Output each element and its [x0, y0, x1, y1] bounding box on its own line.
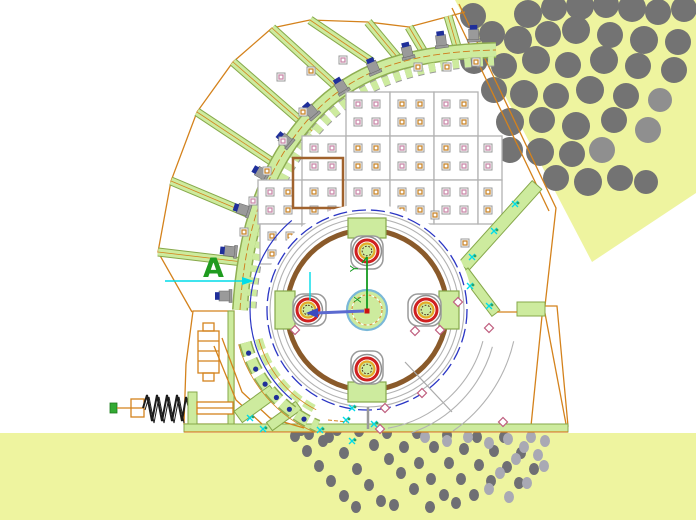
panel-bolt-square — [240, 228, 248, 236]
rock — [635, 117, 661, 143]
rock — [535, 21, 561, 47]
liner-panel — [434, 180, 478, 224]
particle — [384, 453, 394, 465]
panel-bolt-square — [460, 100, 468, 108]
panel-bolt-square — [372, 100, 380, 108]
cyan-mark-dot — [354, 439, 357, 442]
rock — [665, 29, 691, 55]
center-point — [365, 309, 370, 314]
datum-label-a: A — [203, 253, 224, 284]
panel-bolt-square — [354, 100, 362, 108]
panel-bolt-square — [354, 162, 362, 170]
particle — [389, 499, 399, 511]
cyan-mark-dot — [354, 406, 357, 409]
grate-bolt — [274, 395, 279, 400]
cyan-mark-dot — [322, 428, 325, 431]
particle — [540, 435, 550, 447]
particle — [469, 489, 479, 501]
cyan-mark-dot — [474, 255, 477, 258]
particle — [339, 490, 349, 502]
panel-bolt-square — [398, 118, 406, 126]
particle — [326, 475, 336, 487]
panel-bolt-square — [339, 56, 347, 64]
panel-bolt-square — [249, 197, 257, 205]
rock — [543, 165, 569, 191]
cyan-mark-dot — [376, 422, 379, 425]
grate-bolt — [301, 417, 306, 422]
particle — [484, 483, 494, 495]
grate-bolt — [246, 351, 251, 356]
panel-bolt-square — [354, 188, 362, 196]
liner-panel — [390, 136, 434, 180]
pin-marker — [484, 323, 493, 332]
particle — [456, 473, 466, 485]
rock — [601, 107, 627, 133]
panel-bolt-square — [372, 188, 380, 196]
panel-bolt-square — [328, 162, 336, 170]
panel-bolt-square — [354, 118, 362, 126]
rock — [555, 52, 581, 78]
panel-bolt-square — [460, 144, 468, 152]
particle — [472, 431, 482, 443]
panel-bolt-square — [372, 162, 380, 170]
rock — [514, 0, 542, 28]
panel-bolt-square — [328, 188, 336, 196]
hammer-holder — [275, 291, 295, 329]
cyan-mark-dot — [491, 304, 494, 307]
particle — [351, 501, 361, 513]
particle — [399, 441, 409, 453]
hammer-holder — [348, 382, 386, 402]
ucs-y-label: Y — [348, 265, 361, 273]
liner-panel — [478, 136, 502, 180]
panel-bolt-square — [266, 206, 274, 214]
panel-bolt-square — [460, 162, 468, 170]
spring-end-cap — [110, 403, 117, 413]
panel-bolt-square — [354, 144, 362, 152]
particle — [364, 479, 374, 491]
particle — [526, 431, 536, 443]
panel-bolt-square — [310, 162, 318, 170]
panel-bolt-square — [299, 108, 307, 116]
cyan-mark-dot — [265, 427, 268, 430]
bolt-cap — [436, 31, 444, 36]
particle — [442, 435, 452, 447]
liner-panel — [346, 92, 390, 136]
liner-panel — [258, 180, 302, 224]
particle — [369, 439, 379, 451]
rock — [559, 141, 585, 167]
rock — [634, 170, 658, 194]
grate-bolt — [287, 407, 292, 412]
hammer-assembly — [408, 291, 459, 329]
liner-bolt — [433, 30, 448, 48]
particle — [474, 459, 484, 471]
rock — [648, 88, 672, 112]
panel-bolt-square — [442, 206, 450, 214]
hammer-assembly — [348, 351, 386, 402]
rib-centerline — [368, 22, 398, 58]
panel-bolt-square — [398, 144, 406, 152]
panel-bolt-square — [442, 162, 450, 170]
rock — [562, 112, 590, 140]
hammer-holder — [348, 218, 386, 238]
particle — [339, 447, 349, 459]
rock — [613, 83, 639, 109]
particle — [503, 433, 513, 445]
panel-bolt-square — [307, 67, 315, 75]
panel-bolt-square — [484, 188, 492, 196]
particle — [314, 460, 324, 472]
particle — [463, 431, 473, 443]
crusher-drawing: Y X A — [0, 0, 696, 520]
panel-bolt-square — [372, 144, 380, 152]
liner-panel — [346, 136, 390, 180]
particle — [439, 489, 449, 501]
liner-panel — [434, 136, 478, 180]
particle — [376, 495, 386, 507]
rock — [522, 46, 550, 74]
particle — [409, 483, 419, 495]
hammer-holder — [439, 291, 459, 329]
panel-bolt-square — [472, 58, 480, 66]
panel-bolt-square — [277, 73, 285, 81]
cyan-mark-dot — [496, 229, 499, 232]
particle — [420, 431, 430, 443]
rock — [543, 83, 569, 109]
panel-bolt-square — [416, 100, 424, 108]
particle — [324, 431, 334, 443]
panel-bolt-square — [460, 118, 468, 126]
particle — [511, 453, 521, 465]
rock — [574, 168, 602, 196]
particle — [504, 491, 514, 503]
panel-bolt-square — [443, 63, 451, 71]
panel-bolt-square — [398, 100, 406, 108]
panel-bolt-square — [484, 206, 492, 214]
rock — [526, 138, 554, 166]
particle — [426, 473, 436, 485]
rock — [576, 76, 604, 104]
hammer-assembly — [275, 291, 326, 329]
panel-bolt-square — [442, 188, 450, 196]
panel-bolt-square — [279, 137, 287, 145]
rock — [589, 137, 615, 163]
rock — [510, 80, 538, 108]
panel-bolt-square — [328, 144, 336, 152]
panel-bolt-square — [442, 100, 450, 108]
rock — [597, 22, 623, 48]
panel-bolt-square — [442, 144, 450, 152]
bolt-cap — [470, 25, 478, 30]
discharge-fill — [0, 433, 696, 520]
panel-bolt-square — [484, 162, 492, 170]
rock — [661, 57, 687, 83]
cyan-mark-dot — [348, 418, 351, 421]
particle — [484, 437, 494, 449]
panel-bolt-square — [310, 188, 318, 196]
particle — [495, 467, 505, 479]
bolt-body — [219, 291, 230, 301]
rock — [529, 107, 555, 133]
panel-bolt-square — [268, 250, 276, 258]
panel-bolt-square — [416, 162, 424, 170]
right-leg — [497, 302, 568, 426]
rock — [625, 53, 651, 79]
discharge-region — [0, 433, 696, 520]
particle — [539, 460, 549, 472]
panel-bolt-square — [416, 118, 424, 126]
ucs-x-label: X — [353, 296, 364, 303]
bolt-body — [435, 34, 446, 46]
particle — [519, 441, 529, 453]
panel-bolt-square — [460, 188, 468, 196]
panel-bolt-square — [284, 188, 292, 196]
particle — [459, 443, 469, 455]
panel-bolt-square — [266, 188, 274, 196]
grate-bolt — [253, 367, 258, 372]
particle — [429, 441, 439, 453]
cyan-mark-dot — [472, 284, 475, 287]
rock — [645, 0, 671, 25]
liner-bolt — [215, 290, 232, 303]
grate-bolt — [263, 382, 268, 387]
particle — [302, 445, 312, 457]
particle — [533, 449, 543, 461]
panel-bolt-square — [284, 206, 292, 214]
liner-panel — [478, 180, 502, 224]
panel-bolt-square — [398, 188, 406, 196]
panel-bolt-square — [416, 188, 424, 196]
bolt-cap — [215, 292, 220, 300]
panel-bolt-square — [416, 144, 424, 152]
rock — [630, 26, 658, 54]
panel-bolt-square — [398, 162, 406, 170]
coil-spring — [143, 395, 189, 421]
cad-canvas: Y X A — [0, 0, 696, 520]
panel-bolt-square — [310, 144, 318, 152]
particle — [352, 463, 362, 475]
particle — [444, 457, 454, 469]
panel-bolt-square — [431, 211, 439, 219]
cyan-mark-dot — [517, 202, 520, 205]
bolt-body — [224, 246, 235, 257]
panel-bolt-square — [414, 63, 422, 71]
panel-bolt-square — [372, 118, 380, 126]
particle — [396, 467, 406, 479]
liner-panel — [390, 92, 434, 136]
radius-arrow — [316, 311, 364, 313]
panel-bolt-square — [460, 206, 468, 214]
rock — [481, 77, 507, 103]
panel-bolt-square — [416, 206, 424, 214]
particle — [414, 457, 424, 469]
bolt-body — [469, 29, 479, 40]
rock — [607, 165, 633, 191]
particle — [425, 501, 435, 513]
panel-bolt-square — [442, 118, 450, 126]
rock — [590, 46, 618, 74]
panel-bolt-square — [263, 167, 271, 175]
particle — [522, 477, 532, 489]
cyan-mark-dot — [252, 416, 255, 419]
rock — [562, 16, 590, 44]
panel-bolt-square — [461, 239, 469, 247]
panel-bolt-square — [484, 144, 492, 152]
particle — [451, 497, 461, 509]
particle — [529, 463, 539, 475]
liner-panel — [434, 92, 478, 136]
